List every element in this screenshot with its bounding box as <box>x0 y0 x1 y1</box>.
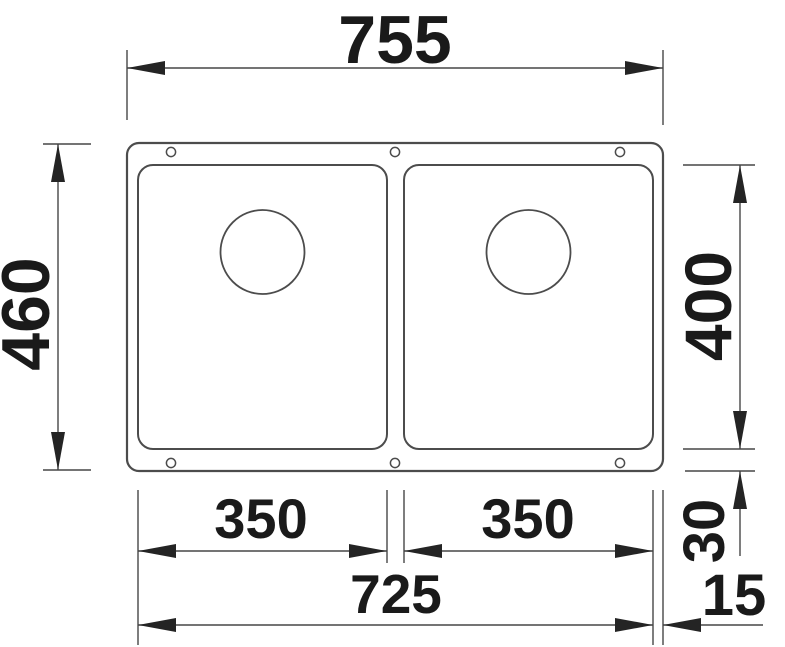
arrowhead-up <box>733 165 747 203</box>
technical-drawing-canvas: 755 460 400 30 350 <box>0 0 785 647</box>
dim-bowl-depth: 400 <box>671 165 755 449</box>
arrowhead-left <box>138 618 176 632</box>
dim-rim-depth-label: 30 <box>672 499 737 564</box>
arrowhead-left <box>138 544 176 558</box>
mounting-hole-bottom-right <box>615 458 624 467</box>
left-bowl <box>138 165 387 449</box>
arrowhead-down <box>51 432 65 470</box>
dim-bowls-overall-width-label: 725 <box>350 563 442 625</box>
dim-overall-width: 755 <box>127 2 663 125</box>
dim-right-bowl-width-label: 350 <box>481 487 574 550</box>
arrowhead-right <box>615 618 653 632</box>
right-bowl <box>404 165 653 449</box>
dim-left-bowl-width: 350 <box>138 487 387 558</box>
mounting-hole-bottom-left <box>166 458 175 467</box>
arrowhead-right <box>625 61 663 75</box>
mounting-hole-top-center <box>390 147 399 156</box>
arrowhead-left <box>127 61 165 75</box>
mounting-hole-top-left <box>166 147 175 156</box>
mounting-hole-top-right <box>615 147 624 156</box>
arrowhead-left <box>663 618 701 632</box>
arrowhead-right <box>615 544 653 558</box>
dim-left-bowl-width-label: 350 <box>214 487 307 550</box>
dim-rim-depth: 30 <box>672 471 755 563</box>
arrowhead-right <box>349 544 387 558</box>
sink-plan-view <box>127 143 663 471</box>
dim-bowls-overall-width: 725 <box>138 563 653 632</box>
dim-overall-depth-label: 460 <box>0 257 64 370</box>
dim-overall-depth: 460 <box>0 144 91 470</box>
dim-overall-width-label: 755 <box>338 2 451 78</box>
arrowhead-down <box>733 411 747 449</box>
sink-dimension-drawing: 755 460 400 30 350 <box>0 0 785 647</box>
mounting-hole-bottom-center <box>390 458 399 467</box>
dim-rim-side-label: 15 <box>702 563 767 628</box>
dim-rim-side: 15 <box>663 563 766 632</box>
arrowhead-up <box>51 144 65 182</box>
left-drain-hole <box>221 210 305 294</box>
right-drain-hole <box>487 210 571 294</box>
dim-right-bowl-width: 350 <box>404 487 653 558</box>
dim-bowl-depth-label: 400 <box>671 251 745 361</box>
arrowhead-left <box>404 544 442 558</box>
